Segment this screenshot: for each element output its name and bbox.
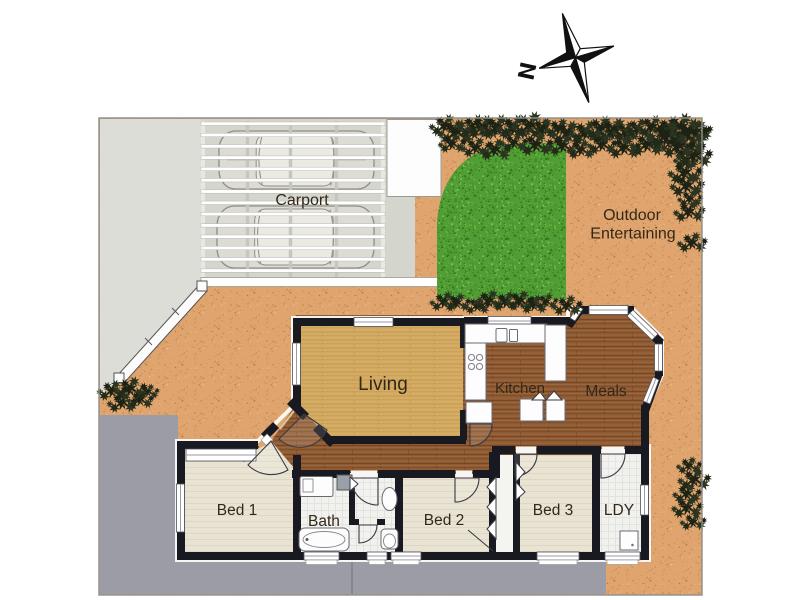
svg-text:Bed 3: Bed 3 — [533, 502, 574, 519]
svg-text:Carport: Carport — [275, 192, 329, 209]
svg-text:Entertaining: Entertaining — [590, 226, 675, 243]
svg-text:LDY: LDY — [604, 502, 634, 519]
svg-text:Bath: Bath — [308, 513, 340, 530]
svg-text:Kitchen: Kitchen — [495, 380, 545, 397]
svg-text:Outdoor: Outdoor — [603, 207, 661, 224]
svg-text:Meals: Meals — [585, 383, 627, 400]
svg-text:Bed 1: Bed 1 — [217, 502, 258, 519]
svg-text:Bed 2: Bed 2 — [424, 512, 465, 529]
svg-text:Living: Living — [358, 374, 408, 395]
